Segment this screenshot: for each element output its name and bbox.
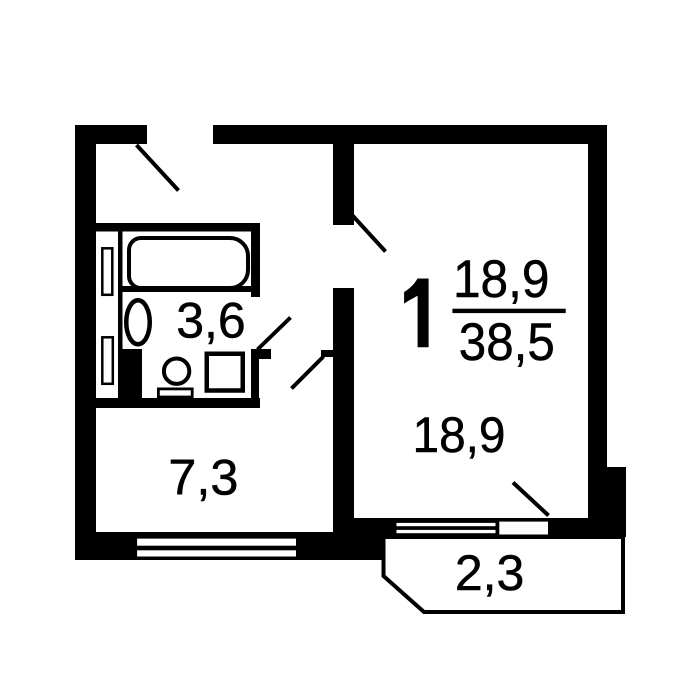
svg-text:2,3: 2,3 [455,545,525,601]
svg-text:7,3: 7,3 [168,450,238,506]
svg-text:18,9: 18,9 [453,250,550,309]
svg-text:3,6: 3,6 [176,293,246,349]
svg-text:18,9: 18,9 [413,407,506,463]
svg-text:38,5: 38,5 [459,313,555,372]
